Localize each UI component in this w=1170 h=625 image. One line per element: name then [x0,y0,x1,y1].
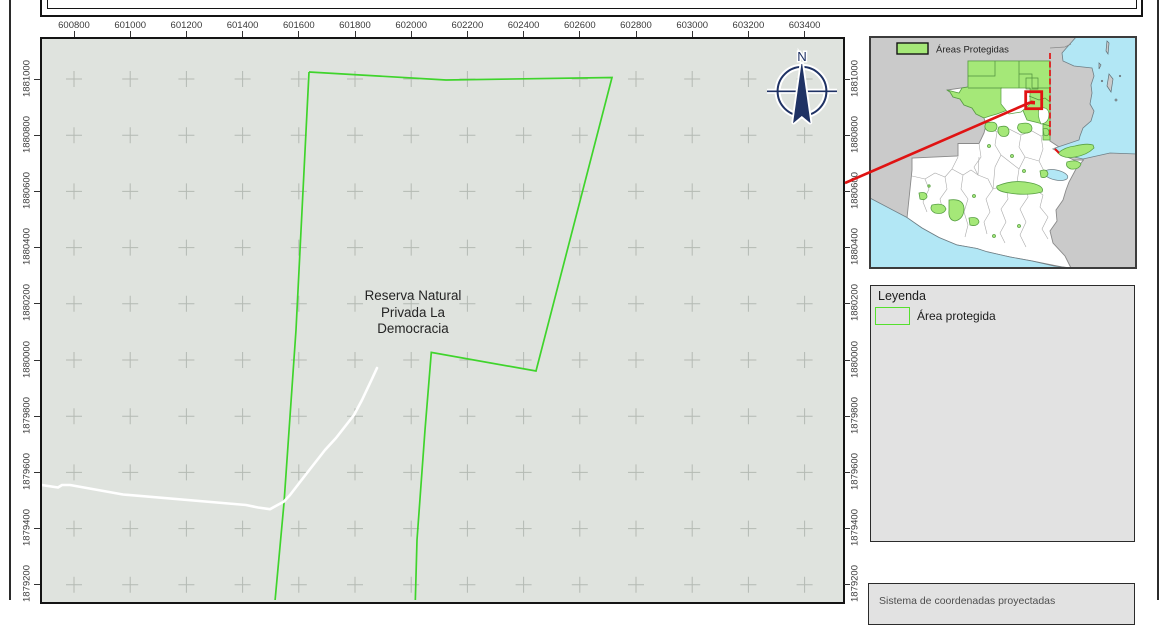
svg-text:Áreas Protegidas: Áreas Protegidas [936,45,1009,56]
svg-text:N: N [797,49,807,64]
